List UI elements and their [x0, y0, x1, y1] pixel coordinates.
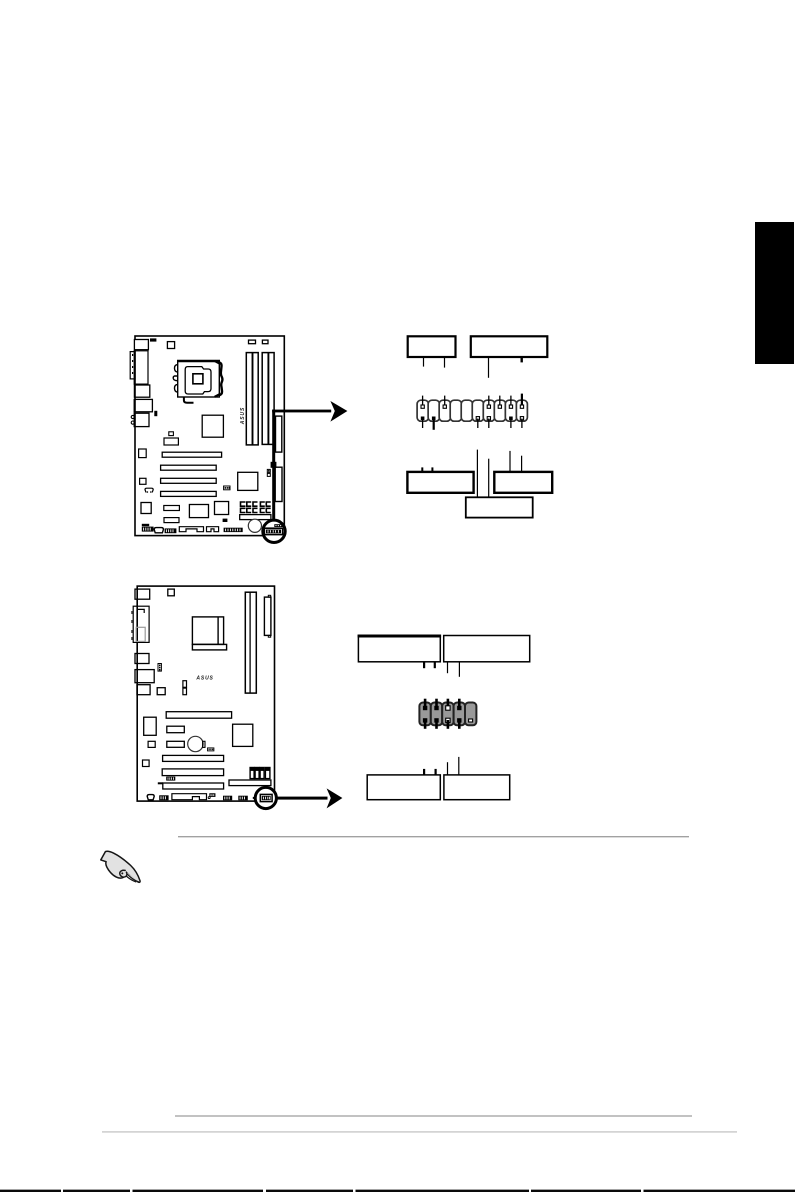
- svg-text:ASUS: ASUS: [240, 407, 246, 425]
- svg-text:ASUS: ASUS: [195, 675, 213, 681]
